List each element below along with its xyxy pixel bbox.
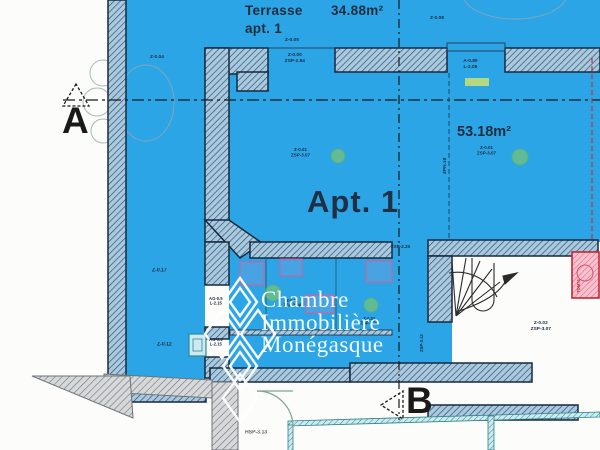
stair-treads (452, 258, 500, 316)
fixture-3 (366, 261, 392, 282)
lower-level-teal-walls (288, 412, 600, 450)
label-level-top-right: Z-0.08 (430, 16, 444, 22)
stair-left-wall (428, 256, 452, 322)
section-marker-a-letter: A (62, 100, 89, 143)
label-door-height: ZSP-2.25 (391, 245, 410, 250)
label-window-opening: A-0.80 L-2.05 (448, 59, 493, 70)
wall-fixture-box (189, 334, 206, 356)
label-room-point-right: Z-0.01 ZSP-3.07 (470, 146, 503, 156)
label-window-left-2: AG-0.5 L-2.15 (206, 338, 226, 348)
inner-vertical-wall (205, 48, 229, 242)
label-window-left-1: AG-0.5 L-2.15 (206, 297, 226, 307)
dot-room-right (512, 149, 528, 165)
section-marker-b-triangle (381, 391, 403, 419)
teal-vert-wall-1 (288, 425, 293, 450)
gray-wedge-wall (32, 376, 133, 418)
lower-level-walls (32, 374, 238, 450)
label-level-top-left: Z-0.04 (150, 55, 164, 61)
left-room-area (126, 242, 205, 390)
floor-plan: Z-0.04 Terrasse apt. 1 34.88m² Z-0.05 Z-… (0, 0, 600, 450)
dot-room-left (331, 149, 345, 163)
terrace-name-label: Terrasse apt. 1 (245, 2, 303, 37)
label-edge-top: Z-0.04 (186, 0, 200, 2)
bottom-wall-mid (210, 368, 350, 382)
label-corridor-height: ZSP-3.13 (420, 334, 425, 352)
label-shaft: TDM74 (577, 279, 582, 293)
bottom-wall-right (350, 363, 532, 382)
label-level-top-mid: Z-0.05 (285, 38, 299, 44)
gray-vertical-wall (212, 382, 238, 450)
stair-arrow-head (503, 273, 517, 284)
watermark-text: Chambre Immobilière Monégasque (261, 289, 384, 357)
terrace-wall-b (335, 48, 447, 72)
apartment-area-label: 53.18m² (457, 124, 511, 141)
label-terrace-opening: Z-0.00 ZSP-2.84 (270, 53, 320, 64)
label-stair-point: Z-0.02 ZSP-3.07 (524, 321, 558, 332)
left-room-wall-1 (205, 242, 229, 285)
living-partition-wall (250, 242, 392, 258)
terrace-area-label: 34.88m² (331, 3, 383, 19)
left-outer-wall (108, 0, 126, 378)
apartment-name-label: Apt. 1 (307, 184, 399, 220)
terrace-wall-a-tab (237, 72, 268, 91)
teal-vert-wall-2 (488, 416, 494, 450)
stair-rail (472, 258, 494, 311)
terrace-wall-c (505, 48, 600, 72)
fixture-2 (280, 259, 302, 276)
staircase (449, 258, 517, 316)
section-marker-b-letter: B (406, 380, 433, 423)
label-level-left-upper: Z-0.17 (152, 268, 167, 274)
plan-drawing (0, 0, 600, 450)
label-below-height: HSP-3.13 (245, 430, 267, 436)
label-joint-line: ZPN.19 (443, 158, 449, 174)
label-room-point-left: Z-0.01 ZSP-3.07 (284, 148, 317, 158)
label-level-left-lower: Z-0.12 (157, 342, 172, 348)
window-highlight (465, 78, 489, 86)
